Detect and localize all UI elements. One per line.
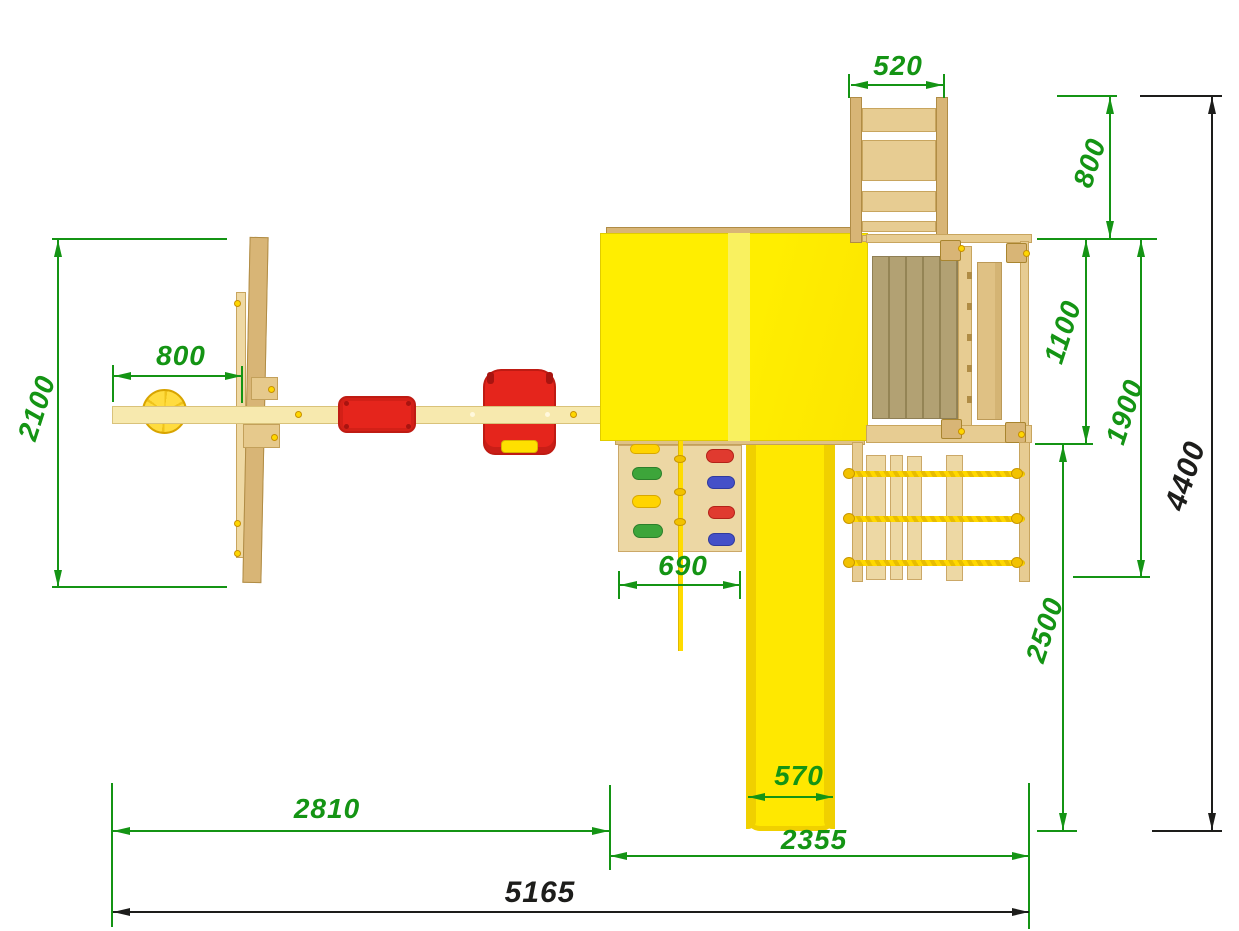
dim-line (114, 375, 242, 377)
beam-bolt (570, 411, 577, 418)
rope-climber-slat (907, 456, 922, 580)
dim-arrow (592, 827, 609, 835)
dim-arrow (1106, 221, 1114, 238)
dim-ext-line (112, 365, 114, 402)
climber-rope (845, 516, 1025, 522)
frame-bolt (234, 520, 241, 527)
slide (0, 0, 1239, 931)
dim-label: 690 (658, 550, 708, 582)
dim-line (1109, 97, 1111, 238)
dim-arrow (1208, 813, 1216, 830)
dim-line (113, 830, 609, 832)
slide-rail-right (824, 436, 835, 829)
dim-label: 4400 (1159, 437, 1213, 515)
dim-slide-width: 570 (0, 0, 1239, 931)
platform-outer-rail (1020, 241, 1029, 444)
rope-end-knot (1011, 557, 1023, 568)
platform-baluster-notches (967, 248, 972, 436)
dim-climbing-wall-width: 690 (0, 0, 1239, 931)
dim-arrow (114, 372, 131, 380)
baby-swing-seat (0, 0, 1239, 931)
dim-arrow (1106, 97, 1114, 114)
dim-ladder-extension: 800 (0, 0, 1239, 931)
dim-ext-line (848, 74, 850, 98)
seat-bolt (344, 424, 349, 429)
seat-bolt (406, 401, 411, 406)
access-ladder (0, 0, 1239, 931)
rope-end-knot (1011, 468, 1023, 479)
roof-top-beam (606, 227, 862, 236)
frame-bolt (271, 434, 278, 441)
dim-arrow (748, 793, 765, 801)
dim-arrow (816, 793, 833, 801)
dim-arrow (1012, 908, 1029, 916)
dim-slide-run: 2500 (0, 0, 1239, 931)
dim-arrow (851, 81, 868, 89)
dim-arrow (113, 827, 130, 835)
dim-line (851, 84, 943, 86)
dim-arrow (113, 908, 130, 916)
dim-ladder-width: 520 (0, 0, 1239, 931)
corner-post (1005, 422, 1026, 443)
disc-swing-seat (142, 389, 187, 434)
rope-climber (0, 0, 1239, 931)
ladder-rail-left (850, 97, 862, 243)
dim-label: 1900 (1100, 376, 1151, 449)
swing-frame (0, 0, 1239, 931)
climbing-hold-green (633, 524, 663, 538)
ladder-rung (862, 191, 936, 212)
dim-arrow (225, 372, 242, 380)
dim-ext-line (943, 74, 945, 98)
dim-line (1062, 445, 1064, 830)
playhouse-roof (0, 0, 1239, 931)
ladder-rung (862, 235, 936, 242)
frame-bolt (234, 550, 241, 557)
dim-line (1140, 240, 1142, 577)
swing-frame-inner-board (236, 292, 246, 558)
dim-arrow (1137, 560, 1145, 577)
dim-platform-depth: 1100 (0, 0, 1239, 931)
dim-arrow (54, 570, 62, 587)
platform (0, 0, 1239, 931)
rope-knot (674, 518, 686, 526)
platform-baluster-rail (958, 246, 972, 438)
baby-seat-chain-left (487, 372, 494, 384)
roof-ridge (728, 233, 750, 441)
climbing-wall-panel (618, 445, 742, 552)
dim-ext-line (1140, 95, 1222, 97)
climbing-hold-blue (708, 533, 735, 546)
dim-swing-section-length: 2810 (0, 0, 1239, 931)
frame-bolt (234, 300, 241, 307)
dim-label: 570 (774, 760, 824, 792)
dim-line (1085, 240, 1087, 443)
dim-ext-line (241, 366, 243, 403)
ladder-rung (862, 108, 936, 132)
swing-frame-bracket-lower (243, 424, 280, 448)
dim-ext-line (1037, 830, 1077, 832)
swing-beam (0, 0, 1239, 931)
dim-ext-line (52, 586, 227, 588)
platform-bolt (1018, 431, 1025, 438)
platform-deck (872, 256, 958, 419)
rope-end-knot (1011, 513, 1023, 524)
climbing-wall (0, 0, 1239, 931)
climbing-rope (678, 441, 683, 651)
dim-arrow (610, 852, 627, 860)
dim-swing-frame-depth: 2100 (0, 0, 1239, 931)
baby-seat-body (483, 369, 556, 455)
seat-bolt (406, 424, 411, 429)
house-bottom-beam (615, 438, 865, 445)
climbing-hold-blue (707, 476, 735, 489)
dim-arrow (54, 240, 62, 257)
dim-overall-length: 5165 (0, 0, 1239, 931)
dim-label: 800 (156, 340, 206, 372)
seat-bolt (344, 401, 349, 406)
rope-climber-slat (946, 455, 963, 581)
dim-label: 2100 (12, 372, 63, 445)
baby-seat-insert (501, 440, 538, 453)
dim-ext-line (609, 785, 611, 870)
swing-frame-bracket-upper (251, 377, 278, 400)
dim-arrow (1059, 445, 1067, 462)
dim-arrow (1208, 97, 1216, 114)
rope-climber-slat (866, 455, 886, 580)
dim-arrow (926, 81, 943, 89)
climbing-hold-yellow (630, 444, 660, 454)
dim-tower-section-length: 2355 (0, 0, 1239, 931)
slide-body (746, 436, 835, 831)
ladder-rung (862, 140, 936, 181)
dim-ext-line (111, 783, 113, 927)
corner-post (941, 419, 962, 439)
rope-end-knot (843, 557, 855, 568)
rope-end-knot (843, 468, 855, 479)
rope-end-knot (843, 513, 855, 524)
rope-knot (674, 488, 686, 496)
rope-climber-post-right (1019, 442, 1030, 582)
dim-label: 2500 (1020, 594, 1071, 667)
climbing-hold-red (708, 506, 735, 519)
dim-ext-line (52, 238, 227, 240)
dim-swing-offset: 800 (0, 0, 1239, 931)
corner-post (1006, 243, 1027, 263)
dim-ext-line (1057, 95, 1117, 97)
climber-rope (845, 471, 1025, 477)
dim-arrow (1137, 240, 1145, 257)
frame-bolt (268, 386, 275, 393)
baby-seat-chain-right (546, 372, 553, 384)
dim-line (748, 796, 833, 798)
dim-arrow (723, 581, 740, 589)
dim-ext-line (1152, 830, 1222, 832)
platform-bottom-beam (866, 425, 1032, 443)
flat-swing-seat (0, 0, 1239, 931)
dim-ext-line (1037, 238, 1157, 240)
dim-line (620, 584, 740, 586)
platform-bolt (958, 428, 965, 435)
dim-label: 5165 (505, 876, 576, 910)
dim-arrow (1059, 813, 1067, 830)
dim-ext-line (739, 571, 741, 599)
beam-hole (545, 412, 550, 417)
slide-rail-left (746, 436, 756, 829)
dim-label: 800 (1067, 134, 1113, 191)
climbing-hold-red (706, 449, 734, 463)
dim-line (57, 240, 59, 587)
beam-bolt (295, 411, 302, 418)
flat-seat-body (338, 396, 416, 433)
dim-platform-total-depth: 1900 (0, 0, 1239, 931)
dim-arrow (1082, 426, 1090, 443)
roof-surface (600, 233, 868, 441)
dim-arrow (620, 581, 637, 589)
corner-post (940, 240, 961, 261)
beam-hole (470, 412, 475, 417)
platform-top-beam (866, 234, 1032, 243)
dim-label: 1100 (1038, 297, 1088, 368)
swing-frame-leg (242, 237, 268, 583)
dim-ext-line (1028, 783, 1030, 929)
rope-climber-post-left (852, 442, 863, 582)
dim-label: 2810 (294, 793, 360, 825)
platform-bolt (1023, 250, 1030, 257)
dim-line (1211, 97, 1213, 830)
rope-knot (674, 455, 686, 463)
platform-bolt (958, 245, 965, 252)
drawing-canvas: 520 800 1100 1900 2500 (0, 0, 1239, 931)
dim-ext-line (1035, 443, 1093, 445)
dim-line (113, 911, 1029, 913)
platform-hand-rail (977, 262, 1002, 420)
climbing-hold-green (632, 467, 662, 480)
dim-line (610, 855, 1029, 857)
rope-climber-slat (890, 455, 903, 580)
dim-overall-depth: 4400 (0, 0, 1239, 931)
dim-ext-line (1073, 576, 1150, 578)
climbing-hold-yellow (632, 495, 661, 508)
dim-label: 520 (873, 50, 923, 82)
dim-arrow (1012, 852, 1029, 860)
beam-hole (350, 413, 355, 418)
ladder-rail-right (936, 97, 948, 243)
climber-rope (845, 560, 1025, 566)
dim-arrow (1082, 240, 1090, 257)
dim-ext-line (618, 571, 620, 599)
dim-label: 2355 (781, 824, 847, 856)
ladder-rung (862, 221, 936, 232)
